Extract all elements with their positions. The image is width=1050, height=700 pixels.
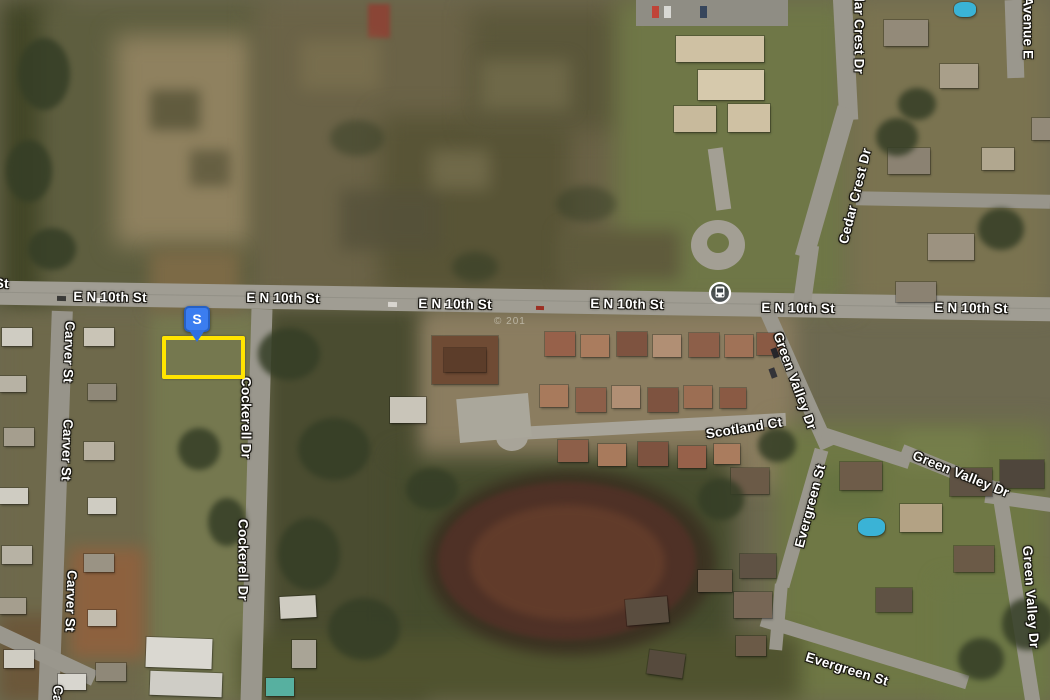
road-label: Evergreen St <box>804 649 890 688</box>
satellite-map: © 201 E N 10th StE N 10th StE N 10th StE… <box>0 0 1050 700</box>
road-label: Carver St <box>58 419 75 481</box>
road-labels-layer: E N 10th StE N 10th StE N 10th StE N 10t… <box>0 0 1050 700</box>
bus-icon <box>708 281 732 310</box>
road-label: Carver St <box>60 321 77 383</box>
property-marker[interactable]: S <box>184 306 210 346</box>
road-label: E N 10th St <box>934 300 1008 316</box>
road-label: Scotland Ct <box>705 415 784 442</box>
road-label: E N 10th St <box>73 289 147 305</box>
road-label: Carver St <box>48 685 65 700</box>
road-label: Cedar Crest Dr <box>836 147 874 246</box>
road-label: Evergreen St <box>792 463 829 550</box>
road-label: Cockerell Dr <box>239 377 254 459</box>
marker-label: S <box>192 311 201 327</box>
marker-pin: S <box>184 306 210 332</box>
road-label: Carver St <box>62 570 79 632</box>
road-label: E N 10th St <box>0 275 9 291</box>
road-label: Avenue E <box>1021 0 1036 59</box>
road-label: Green Valley Dr <box>1020 545 1042 649</box>
marker-tail <box>189 330 205 342</box>
road-label: E N 10th St <box>418 296 492 312</box>
road-label: E N 10th St <box>246 290 320 306</box>
road-label: E N 10th St <box>761 300 835 316</box>
road-label: Cockerell Dr <box>236 519 251 601</box>
road-label: Green Valley Dr <box>911 448 1012 500</box>
road-label: E N 10th St <box>590 296 664 312</box>
road-label: Cedar Crest Dr <box>852 0 867 74</box>
